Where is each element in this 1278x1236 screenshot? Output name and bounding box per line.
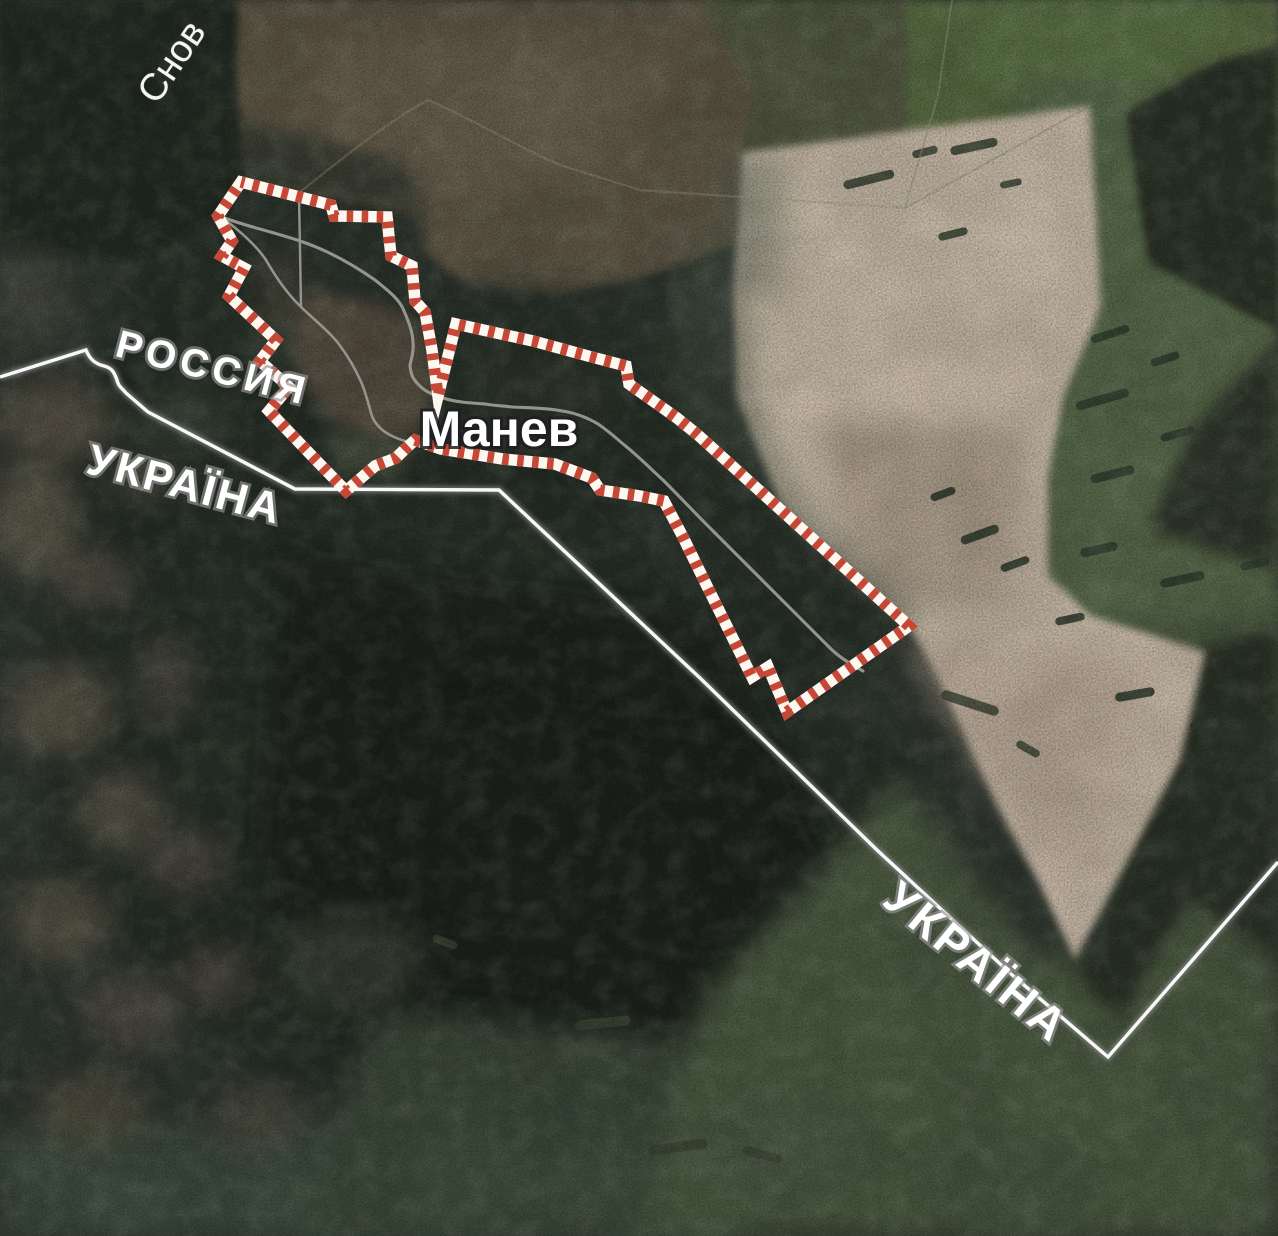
svg-text:Манев: Манев xyxy=(420,401,579,457)
